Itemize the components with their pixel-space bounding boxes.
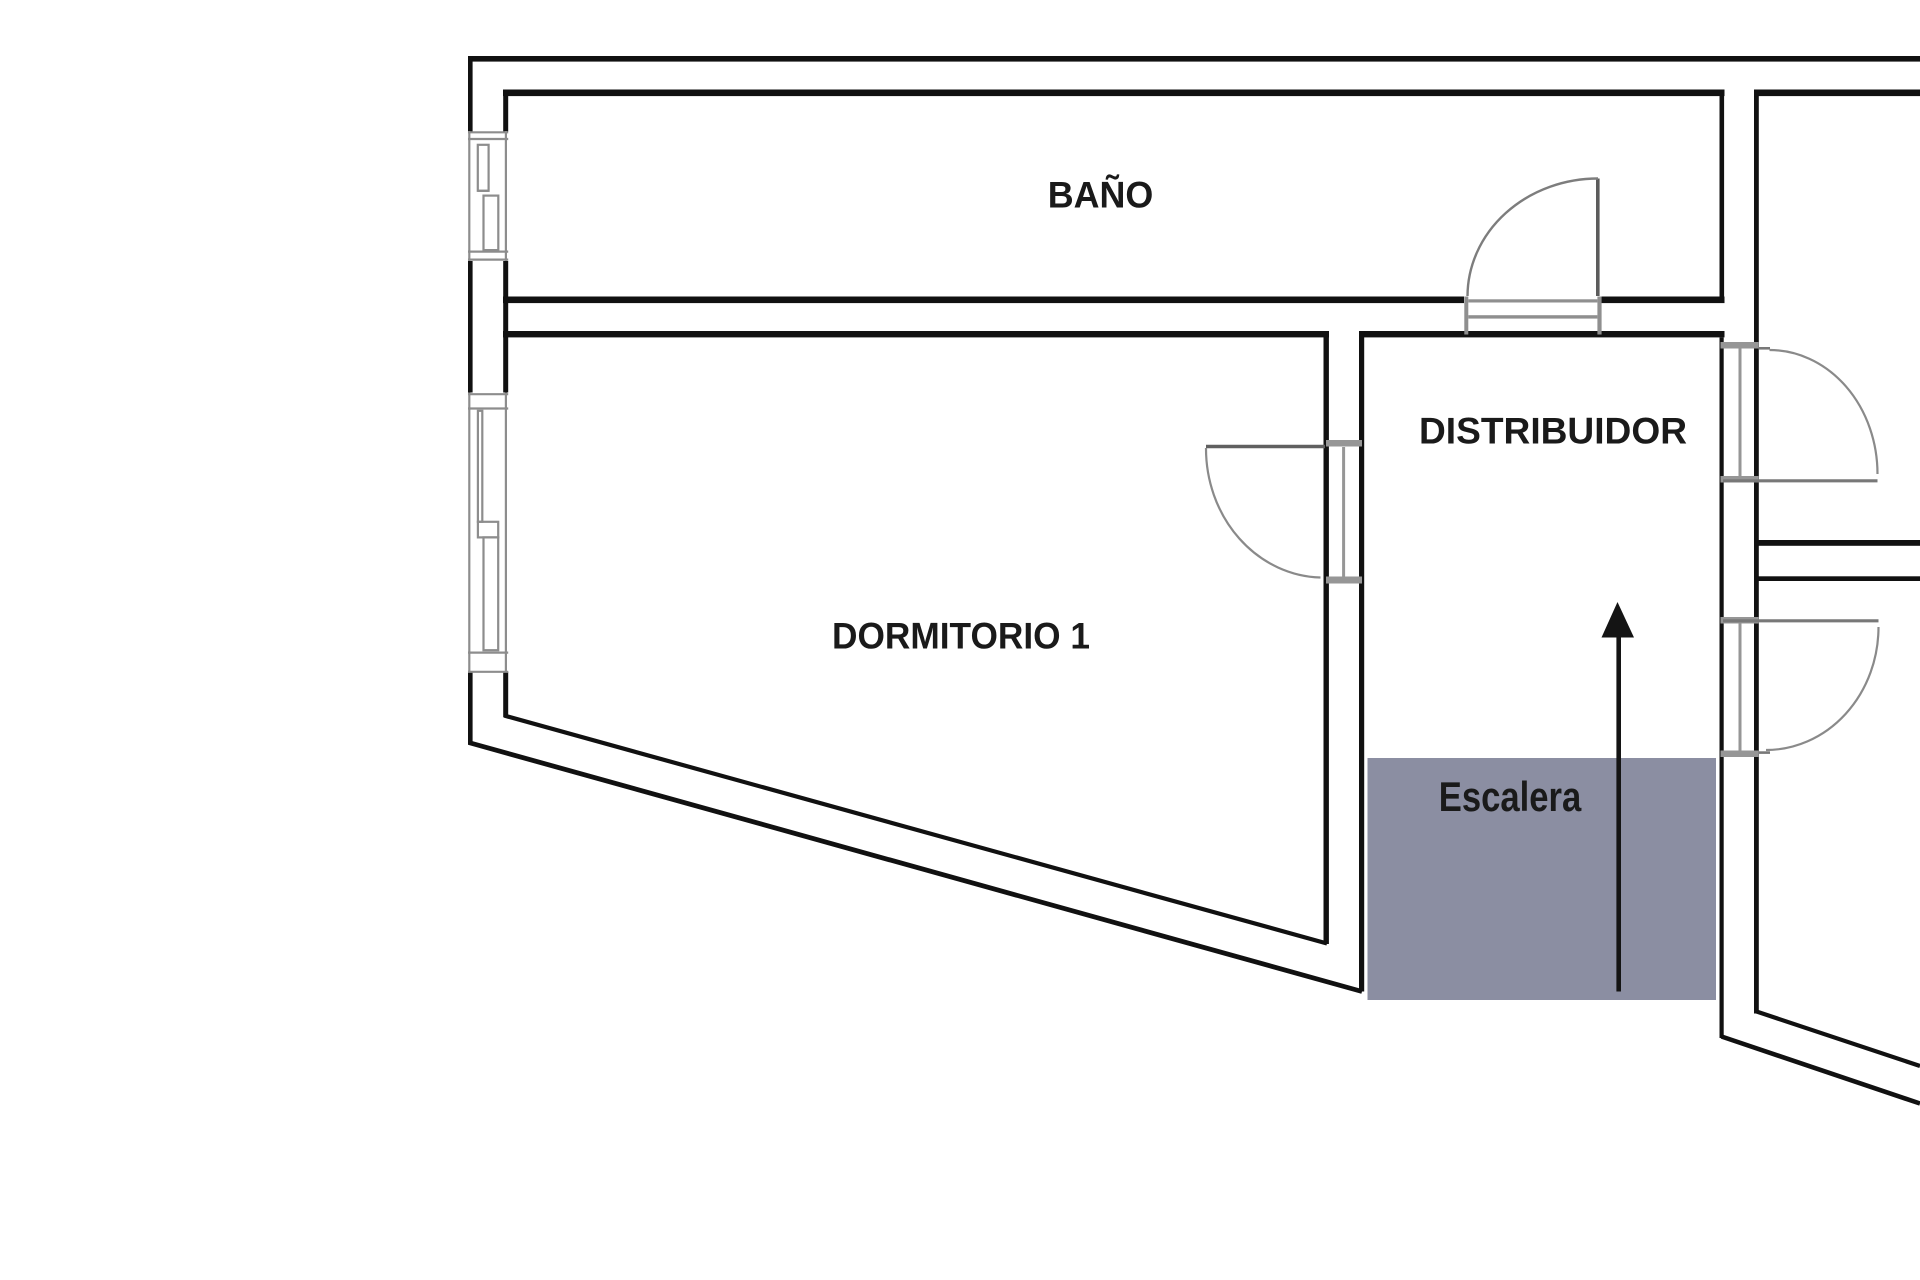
- svg-text:BAÑO: BAÑO: [1048, 174, 1154, 216]
- svg-text:DORMITORIO 1: DORMITORIO 1: [832, 615, 1090, 657]
- svg-text:Escalera: Escalera: [1439, 773, 1582, 820]
- svg-text:DISTRIBUIDOR: DISTRIBUIDOR: [1419, 411, 1687, 452]
